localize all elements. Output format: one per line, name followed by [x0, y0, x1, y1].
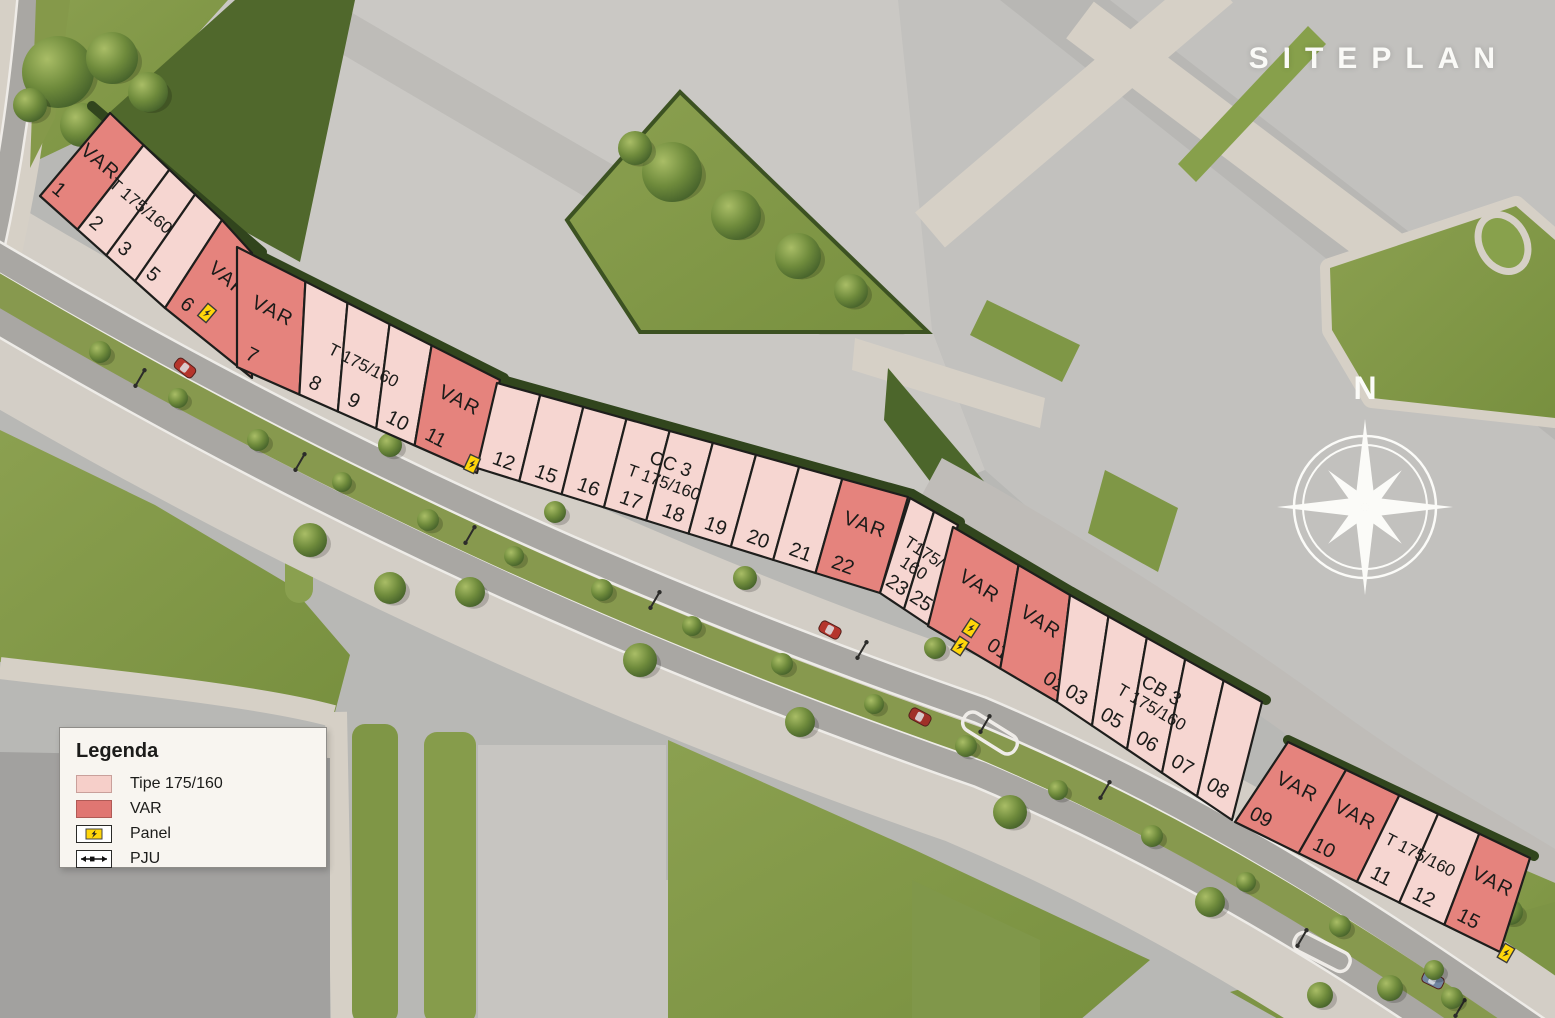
tree	[591, 579, 613, 601]
legend-heading: Legenda	[76, 740, 326, 763]
tree	[993, 795, 1027, 829]
var-swatch	[76, 800, 112, 818]
tree	[924, 637, 946, 659]
tree	[623, 643, 657, 677]
tree	[864, 694, 884, 714]
page-title: SITEPLAN	[1249, 42, 1509, 76]
tree	[1048, 780, 1068, 800]
tree	[374, 572, 406, 604]
tree	[711, 190, 761, 240]
tree	[504, 546, 524, 566]
compass-north-label: N	[1353, 370, 1376, 406]
tree	[775, 233, 821, 279]
tree	[544, 501, 566, 523]
tree	[1195, 887, 1225, 917]
tree	[89, 341, 111, 363]
tree	[1377, 975, 1403, 1001]
legend-panel: Legenda Tipe 175/160 VAR Panel	[59, 727, 327, 868]
tree	[733, 566, 757, 590]
tree	[771, 653, 793, 675]
tree	[1236, 872, 1256, 892]
tree	[128, 72, 168, 112]
tree	[417, 509, 439, 531]
tree	[1307, 982, 1333, 1008]
tree	[247, 429, 269, 451]
legend-item-panel: Panel	[76, 821, 326, 846]
legend-item-var: VAR	[76, 796, 326, 821]
tipe-swatch	[76, 775, 112, 793]
pju-icon	[76, 850, 112, 868]
tree	[13, 88, 47, 122]
legend-item-tipe: Tipe 175/160	[76, 771, 326, 796]
tree	[86, 32, 138, 84]
legend-item-pju: PJU	[76, 846, 326, 871]
siteplan-page: 1VAR235T 175/1606VAR7VAR891011VART 175/1…	[0, 0, 1555, 1018]
tree	[618, 131, 652, 165]
tree	[1329, 915, 1351, 937]
tree	[455, 577, 485, 607]
tree	[785, 707, 815, 737]
tree	[1424, 960, 1444, 980]
tree	[1441, 987, 1463, 1009]
panel-icon	[76, 825, 112, 843]
tree	[955, 735, 977, 757]
tree	[1141, 825, 1163, 847]
tree	[168, 388, 188, 408]
tree	[332, 472, 352, 492]
tree	[293, 523, 327, 557]
tree	[834, 274, 868, 308]
tree	[682, 616, 702, 636]
